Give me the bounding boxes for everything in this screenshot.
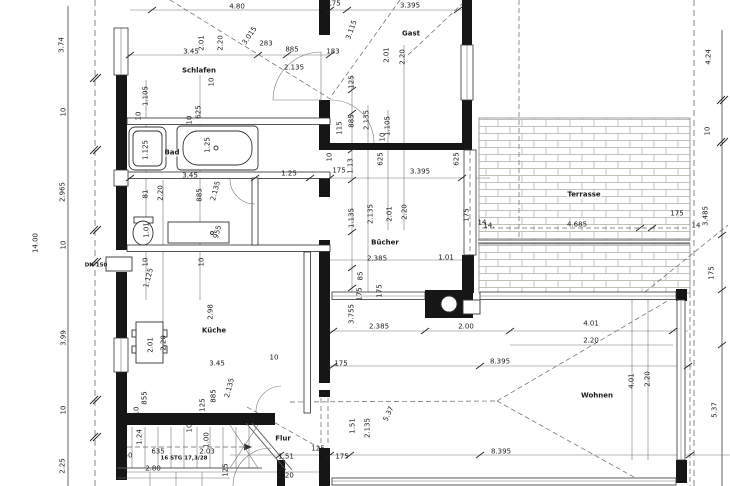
dimension-label: 10: [380, 133, 387, 142]
dimension-label: 10: [199, 258, 206, 267]
dimension-label: 1.13: [348, 158, 355, 174]
dimension-label: 2.385: [367, 256, 387, 263]
dimension-label: 5.37: [383, 405, 396, 422]
dimension-label: 10: [187, 116, 194, 125]
room-label: Bücher: [370, 240, 400, 247]
room-label: Schlafen: [181, 68, 217, 75]
dimension-label: 2.03: [199, 449, 215, 456]
dimension-label: 175: [357, 287, 364, 300]
dimension-label: 2.135: [364, 110, 371, 130]
dimension-label: 625: [454, 152, 461, 165]
dimension-label: 175: [335, 454, 348, 461]
dimension-label: 14.00: [33, 233, 40, 253]
dimension-label: 2.135: [368, 204, 375, 224]
dimension-label: 3.755: [349, 304, 356, 324]
dimension-label: 10: [209, 78, 216, 87]
annotation-label: DN 150: [85, 263, 108, 269]
dimension-label: 2.965: [60, 182, 67, 202]
dimension-label: 1.125: [143, 267, 155, 288]
dimension-label: 125: [223, 463, 230, 476]
dimension-label: 125: [200, 398, 207, 411]
labels-layer: 4.801753.3953.74102.965103.99102.2514.00…: [0, 0, 730, 486]
dimension-label: 4.80: [229, 4, 245, 11]
dimension-label: 10: [270, 355, 279, 362]
dimension-label: 1.24: [137, 429, 144, 445]
dimension-label: 2.01: [199, 35, 206, 51]
dimension-label: 2.01: [387, 206, 394, 222]
dimension-label: 885: [197, 188, 204, 201]
room-label: Wohnen: [580, 393, 614, 400]
dimension-label: 2.01: [148, 337, 155, 353]
dimension-label: 8.395: [491, 449, 511, 456]
dimension-label: 10: [136, 112, 143, 121]
dimension-label: 1.51: [350, 418, 357, 434]
dimension-label: 625: [378, 152, 385, 165]
dimension-label: 175: [464, 208, 471, 221]
dimension-label: 3.74: [59, 37, 66, 53]
dimension-label: 10: [187, 424, 194, 433]
dimension-label: 1.25: [205, 137, 212, 153]
dimension-label: 3.99: [61, 330, 68, 346]
dimension-label: 10: [705, 127, 712, 136]
dimension-label: 10: [134, 407, 141, 416]
dimension-label: 885: [211, 389, 218, 402]
dimension-label: 855: [142, 391, 149, 404]
dimension-label: 125: [349, 75, 356, 88]
dimension-label: 955: [213, 225, 223, 240]
dimension-label: 50: [124, 453, 133, 460]
dimension-label: 175: [334, 361, 347, 368]
dimension-label: 2.20: [400, 49, 407, 65]
dimension-label: 175: [377, 284, 384, 297]
dimension-label: 2.135: [224, 377, 236, 398]
dimension-label: 2.135: [284, 65, 304, 72]
dimension-label: 175: [709, 266, 716, 279]
room-label: Flur: [274, 436, 292, 443]
room-label: Bad: [163, 150, 180, 157]
floor-plan-canvas: 4.801753.3953.74102.965103.99102.2514.00…: [0, 0, 730, 486]
dimension-label: 3.115: [345, 19, 358, 40]
dimension-label: 115: [337, 121, 344, 134]
dimension-label: 1.01: [144, 222, 151, 238]
dimension-label: 2.20: [583, 338, 599, 345]
dimension-label: 1.105: [143, 86, 150, 106]
dimension-label: 885: [285, 47, 298, 54]
dimension-label: 4.01: [629, 373, 636, 389]
dimension-label: 10: [327, 153, 334, 162]
dimension-label: 2.01: [384, 47, 391, 63]
dimension-label: 2.98: [208, 304, 215, 320]
dimension-label: 2.20: [161, 335, 168, 351]
dimension-label: 2.385: [369, 324, 389, 331]
dimension-label: 2.80: [145, 466, 161, 473]
dimension-label: 3.45: [209, 361, 225, 368]
dimension-label: 5.37: [712, 402, 719, 418]
dimension-label: 85: [358, 272, 365, 281]
dimension-label: 283: [259, 41, 272, 48]
dimension-label: 885: [349, 114, 356, 127]
dimension-label: 3.395: [410, 169, 430, 176]
dimension-label: 4.24: [706, 49, 713, 65]
dimension-label: 3.395: [400, 3, 420, 10]
dimension-label: 3.45: [183, 49, 199, 56]
dimension-label: 2.20: [402, 204, 409, 220]
dimension-label: 1.01: [438, 255, 454, 262]
dimension-label: 3.45: [182, 173, 198, 180]
dimension-label: 2.135: [210, 180, 222, 201]
dimension-label: 2.20: [158, 185, 165, 201]
dimension-label: 183: [326, 49, 339, 56]
dimension-label: 2.20: [278, 473, 294, 480]
dimension-label: 14.: [483, 223, 494, 230]
dimension-label: 1.00: [204, 432, 211, 448]
dimension-label: 625: [196, 105, 203, 118]
dimension-label: 1.135: [349, 208, 356, 228]
dimension-label: 14: [692, 223, 701, 230]
dimension-label: 175: [332, 168, 345, 175]
dimension-label: 125: [311, 446, 324, 453]
dimension-label: 10: [143, 258, 150, 267]
dimension-label: 10: [61, 406, 68, 415]
dimension-label: 1.25: [281, 171, 297, 178]
room-label: Küche: [201, 328, 227, 335]
dimension-label: 3.015: [241, 26, 258, 46]
room-label: Gast: [401, 31, 421, 38]
dimension-label: 2.00: [458, 324, 474, 331]
dimension-label: 2.20: [645, 371, 652, 387]
annotation-label: 16 STG 17,3/28: [161, 456, 208, 462]
dimension-label: 1.125: [143, 140, 150, 160]
dimension-label: 2.20: [218, 35, 225, 51]
dimension-label: 10: [61, 241, 68, 250]
dimension-label: 2.25: [60, 458, 67, 474]
dimension-label: 1.51: [278, 454, 294, 461]
dimension-label: 3.485: [703, 206, 710, 226]
dimension-label: 2.135: [365, 418, 372, 438]
dimension-label: 10: [61, 108, 68, 117]
room-label: Terrasse: [566, 192, 601, 199]
dimension-label: 81: [143, 190, 150, 199]
dimension-label: 4.685: [567, 222, 587, 229]
dimension-label: 175: [327, 1, 340, 8]
dimension-label: 4.01: [583, 321, 599, 328]
dimension-label: 8.395: [490, 359, 510, 366]
dimension-label: 175: [670, 211, 683, 218]
